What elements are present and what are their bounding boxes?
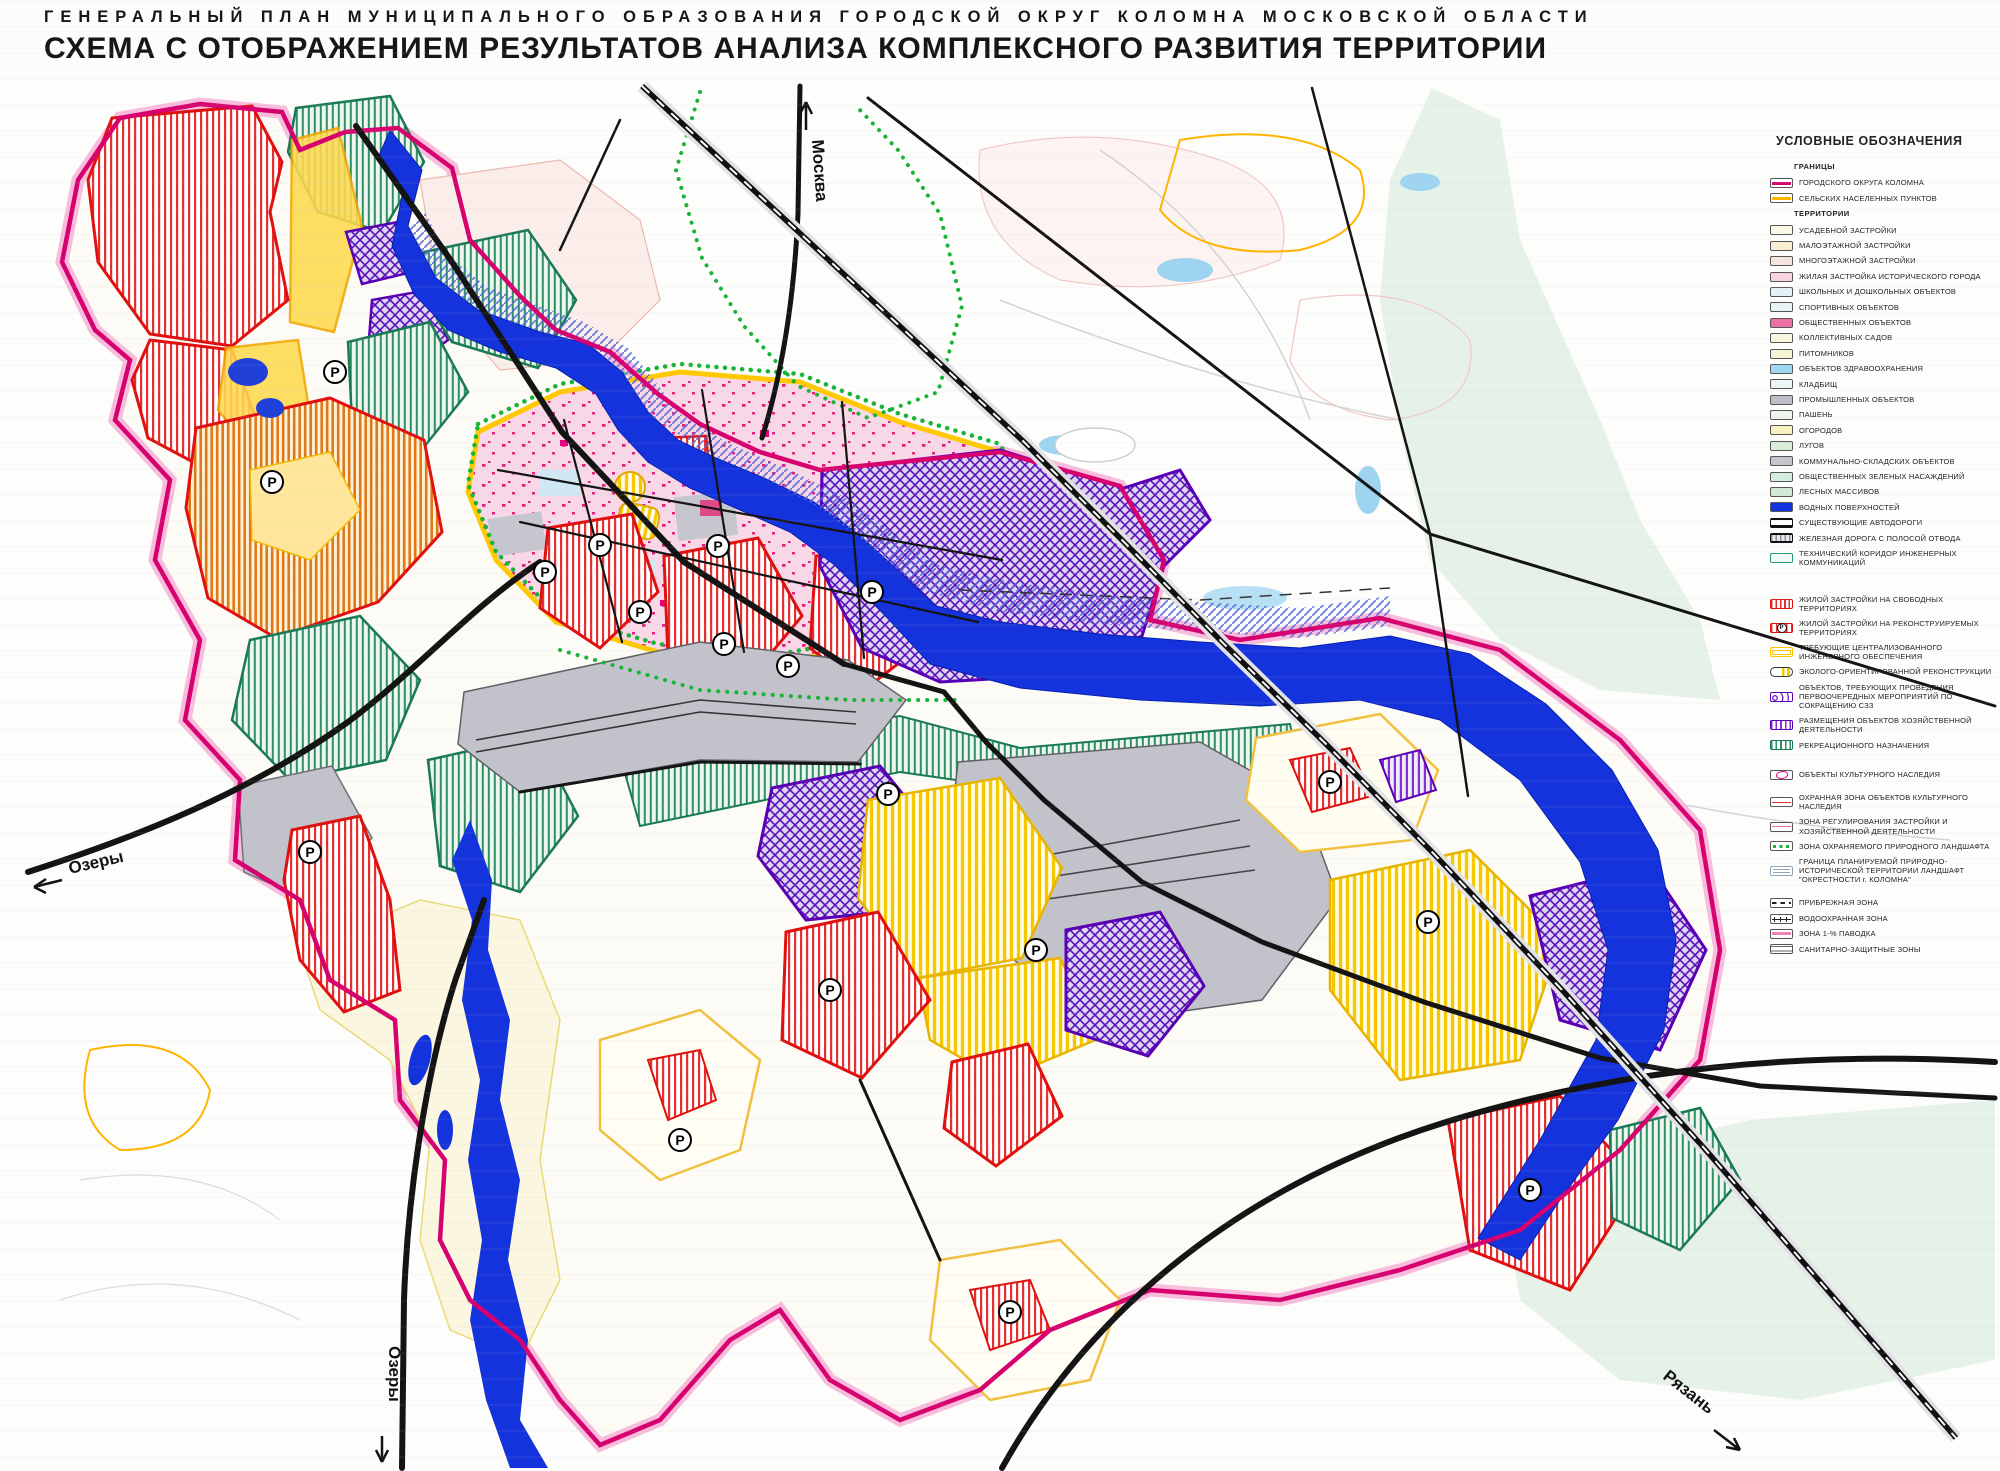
p-marker-label: P xyxy=(1525,1182,1534,1198)
legend-label: ВОДООХРАННАЯ ЗОНА xyxy=(1799,914,1888,923)
p-marker-label: P xyxy=(305,844,314,860)
legend-item: ОБЪЕКТОВ, ТРЕБУЮЩИХ ПРОВЕДЕНИЯ ПЕРВООЧЕР… xyxy=(1770,683,1996,711)
p-marker-label: P xyxy=(719,636,728,652)
collective-gardens-swatch xyxy=(1770,333,1793,343)
legend-label: УСАДЕБНОЙ ЗАСТРОЙКИ xyxy=(1799,226,1897,235)
railway-swatch xyxy=(1770,533,1793,543)
cemeteries-swatch xyxy=(1770,379,1793,389)
lake xyxy=(1355,466,1381,514)
page: { "header": { "supertitle": "ГЕНЕРАЛЬНЫЙ… xyxy=(0,0,2000,1471)
legend-label: ОБЩЕСТВЕННЫХ ОБЪЕКТОВ xyxy=(1799,318,1911,327)
legend-item: ПРИБРЕЖНАЯ ЗОНА xyxy=(1770,898,1996,908)
map-canvas: P P P P P P P P P P P P P P P P P P Моск… xyxy=(0,0,2000,1471)
legend-label: ЗОНА 1-% ПАВОДКА xyxy=(1799,929,1876,938)
water-protection-zone-swatch xyxy=(1770,914,1793,924)
p-marker-label: P xyxy=(267,474,276,490)
legend-label: ВОДНЫХ ПОВЕРХНОСТЕЙ xyxy=(1799,503,1900,512)
recreation-swatch xyxy=(1770,740,1793,750)
flood-zone-swatch xyxy=(1770,929,1793,939)
engineering-swatch xyxy=(1770,647,1793,657)
p-marker-label: P xyxy=(825,982,834,998)
economic-activity-swatch xyxy=(1770,720,1793,730)
legend-item: РЕКРЕАЦИОННОГО НАЗНАЧЕНИЯ xyxy=(1770,740,1996,750)
legend-item: ЖИЛОЙ ЗАСТРОЙКИ НА СВОБОДНЫХ ТЕРРИТОРИЯХ xyxy=(1770,595,1996,614)
legend-item: ЭКОЛОГО-ОРИЕНТИРОВАННОЙ РЕКОНСТРУКЦИИ xyxy=(1770,667,1996,677)
highrise-housing-swatch xyxy=(1770,256,1793,266)
legend-item: ЛЕСНЫХ МАССИВОВ xyxy=(1770,487,1996,497)
legend-item: КЛАДБИЩ xyxy=(1770,379,1996,389)
legend-panel: УСЛОВНЫЕ ОБОЗНАЧЕНИЯ ГРАНИЦЫ ГОРОДСКОГО … xyxy=(1764,134,1996,960)
p-marker-label: P xyxy=(883,786,892,802)
legend-label: СУЩЕСТВУЮЩИЕ АВТОДОРОГИ xyxy=(1799,518,1922,527)
legend-item: ПИТОМНИКОВ xyxy=(1770,349,1996,359)
p-marker: P xyxy=(1417,911,1439,933)
legend-label: ПИТОМНИКОВ xyxy=(1799,349,1854,358)
stadium-oval xyxy=(1055,428,1135,462)
legend-item: КОММУНАЛЬНО-СКЛАДСКИХ ОБЪЕКТОВ xyxy=(1770,456,1996,466)
pond xyxy=(228,358,268,386)
p-marker-label: P xyxy=(330,364,339,380)
p-marker-label: P xyxy=(867,584,876,600)
green-plantings-swatch xyxy=(1770,472,1793,482)
legend-item: ОГОРОДОВ xyxy=(1770,425,1996,435)
tech-corridor-swatch xyxy=(1770,553,1793,563)
legend-title: УСЛОВНЫЕ ОБОЗНАЧЕНИЯ xyxy=(1776,134,1996,148)
legend-item: СПОРТИВНЫХ ОБЪЕКТОВ xyxy=(1770,302,1996,312)
legend-section-borders: ГРАНИЦЫ xyxy=(1794,162,1996,171)
legend-label: ЗОНА РЕГУЛИРОВАНИЯ ЗАСТРОЙКИ И ХОЗЯЙСТВЕ… xyxy=(1799,817,1996,836)
legend-label: ОБЪЕКТОВ ЗДРАВООХРАНЕНИЯ xyxy=(1799,364,1923,373)
legend-item: УСАДЕБНОЙ ЗАСТРОЙКИ xyxy=(1770,225,1996,235)
p-marker: P xyxy=(261,471,283,493)
legend-label: СПОРТИВНЫХ ОБЪЕКТОВ xyxy=(1799,303,1899,312)
p-marker-label: P xyxy=(783,658,792,674)
building-regulation-zone-swatch xyxy=(1770,822,1793,832)
legend-label: КЛАДБИЩ xyxy=(1799,380,1837,389)
legend-label: ТЕХНИЧЕСКИЙ КОРИДОР ИНЖЕНЕРНЫХ КОММУНИКА… xyxy=(1799,549,1996,568)
p-marker-label: P xyxy=(1423,914,1432,930)
heritage-objects-swatch xyxy=(1770,770,1793,780)
housing-free-swatch xyxy=(1770,599,1793,609)
industrial-swatch xyxy=(1770,395,1793,405)
legend-item: СЕЛЬСКИХ НАСЕЛЕННЫХ ПУНКТОВ xyxy=(1770,193,1996,203)
lowrise-housing-swatch xyxy=(1770,241,1793,251)
legend-label: ПАШЕНЬ xyxy=(1799,410,1833,419)
legend-label: ЗОНА ОХРАНЯЕМОГО ПРИРОДНОГО ЛАНДШАФТА xyxy=(1799,842,1990,851)
legend-item: ЛУГОВ xyxy=(1770,441,1996,451)
coastal-zone-swatch xyxy=(1770,898,1793,908)
p-marker-label: P xyxy=(1325,774,1334,790)
legend-section-territories: ТЕРРИТОРИИ xyxy=(1794,209,1996,218)
estate-housing-swatch xyxy=(1770,225,1793,235)
legend-item: ЖИЛАЯ ЗАСТРОЙКА ИСТОРИЧЕСКОГО ГОРОДА xyxy=(1770,272,1996,282)
legend-label: ЖИЛОЙ ЗАСТРОЙКИ НА СВОБОДНЫХ ТЕРРИТОРИЯХ xyxy=(1799,595,1996,614)
p-marker-label: P xyxy=(540,564,549,580)
lake xyxy=(1400,173,1440,191)
public-objects-swatch xyxy=(1770,318,1793,328)
szz-priority-swatch xyxy=(1770,692,1793,702)
legend-label: ЖИЛОЙ ЗАСТРОЙКИ НА РЕКОНСТРУИРУЕМЫХ ТЕРР… xyxy=(1799,619,1996,638)
eco-reconstruction-swatch xyxy=(1770,667,1793,677)
legend-item: ВОДООХРАННАЯ ЗОНА xyxy=(1770,914,1996,924)
legend-label: ОБЪЕКТОВ, ТРЕБУЮЩИХ ПРОВЕДЕНИЯ ПЕРВООЧЕР… xyxy=(1799,683,1996,711)
p-marker: P xyxy=(713,633,735,655)
legend-label: ЖЕЛЕЗНАЯ ДОРОГА С ПОЛОСОЙ ОТВОДА xyxy=(1799,534,1961,543)
city-boundary-swatch xyxy=(1770,178,1793,188)
lake xyxy=(1157,258,1213,282)
p-marker: P xyxy=(299,841,321,863)
p-marker-label: P xyxy=(595,537,604,553)
kitchen-gardens-swatch xyxy=(1770,425,1793,435)
legend-label: ЛУГОВ xyxy=(1799,441,1824,450)
p-marker: P xyxy=(707,535,729,557)
p-marker-label: P xyxy=(713,538,722,554)
school-objects-swatch xyxy=(1770,287,1793,297)
legend-label: ПРИБРЕЖНАЯ ЗОНА xyxy=(1799,898,1878,907)
p-marker: P xyxy=(1025,939,1047,961)
p-marker-label: P xyxy=(675,1132,684,1148)
legend-label: ЭКОЛОГО-ОРИЕНТИРОВАННОЙ РЕКОНСТРУКЦИИ xyxy=(1799,667,1991,676)
p-marker: P xyxy=(669,1129,691,1151)
legend-item: ВОДНЫХ ПОВЕРХНОСТЕЙ xyxy=(1770,502,1996,512)
page-title: СХЕМА С ОТОБРАЖЕНИЕМ РЕЗУЛЬТАТОВ АНАЛИЗА… xyxy=(44,32,1594,66)
legend-item: МАЛОЭТАЖНОЙ ЗАСТРОЙКИ xyxy=(1770,241,1996,251)
legend-item: ГОРОДСКОГО ОКРУГА КОЛОМНА xyxy=(1770,178,1996,188)
p-marker: P xyxy=(589,534,611,556)
legend-label: ПРОМЫШЛЕННЫХ ОБЪЕКТОВ xyxy=(1799,395,1914,404)
legend-item: САНИТАРНО-ЗАЩИТНЫЕ ЗОНЫ xyxy=(1770,944,1996,954)
warehouse-swatch xyxy=(1770,456,1793,466)
p-marker: P xyxy=(534,561,556,583)
nurseries-swatch xyxy=(1770,349,1793,359)
legend-item: ГРАНИЦА ПЛАНИРУЕМОЙ ПРИРОДНО-ИСТОРИЧЕСКО… xyxy=(1770,857,1996,885)
legend-item: ЗОНА ОХРАНЯЕМОГО ПРИРОДНОГО ЛАНДШАФТА xyxy=(1770,841,1996,851)
ozery-south-label: Озеры xyxy=(385,1346,404,1402)
legend-item: ОБЪЕКТЫ КУЛЬТУРНОГО НАСЛЕДИЯ xyxy=(1770,770,1996,780)
legend-item: ШКОЛЬНЫХ И ДОШКОЛЬНЫХ ОБЪЕКТОВ xyxy=(1770,287,1996,297)
legend-label: ТРЕБУЮЩИЕ ЦЕНТРАЛИЗОВАННОГО ИНЖЕНЕРНОГО … xyxy=(1799,643,1996,662)
historic-housing-swatch xyxy=(1770,272,1793,282)
p-marker: P xyxy=(999,1301,1021,1323)
p-marker: P xyxy=(777,655,799,677)
legend-label: КОЛЛЕКТИВНЫХ САДОВ xyxy=(1799,333,1892,342)
legend-item: ТЕХНИЧЕСКИЙ КОРИДОР ИНЖЕНЕРНЫХ КОММУНИКА… xyxy=(1770,549,1996,568)
legend-label: ОХРАННАЯ ЗОНА ОБЪЕКТОВ КУЛЬТУРНОГО НАСЛЕ… xyxy=(1799,793,1996,812)
legend-item: КОЛЛЕКТИВНЫХ САДОВ xyxy=(1770,333,1996,343)
legend-gap xyxy=(1764,785,1996,793)
sanitary-zones-swatch xyxy=(1770,944,1793,954)
map-supertitle: ГЕНЕРАЛЬНЫЙ ПЛАН МУНИЦИПАЛЬНОГО ОБРАЗОВА… xyxy=(44,8,1594,27)
protected-landscape-swatch xyxy=(1770,841,1793,851)
housing-reconstruction-swatch: P xyxy=(1770,623,1793,633)
water-swatch xyxy=(1770,502,1793,512)
legend-item: РАЗМЕЩЕНИЯ ОБЪЕКТОВ ХОЗЯЙСТВЕННОЙ ДЕЯТЕЛ… xyxy=(1770,716,1996,735)
p-marker-label: P xyxy=(1005,1304,1014,1320)
settlement-boundary-swatch xyxy=(1770,193,1793,203)
p-marker-label: P xyxy=(1031,942,1040,958)
legend-item: ПРОМЫШЛЕННЫХ ОБЪЕКТОВ xyxy=(1770,395,1996,405)
legend-label: КОММУНАЛЬНО-СКЛАДСКИХ ОБЪЕКТОВ xyxy=(1799,457,1955,466)
pond xyxy=(256,398,284,418)
legend-label: ЖИЛАЯ ЗАСТРОЙКА ИСТОРИЧЕСКОГО ГОРОДА xyxy=(1799,272,1981,281)
roads-swatch xyxy=(1770,518,1793,528)
legend-item: ТРЕБУЮЩИЕ ЦЕНТРАЛИЗОВАННОГО ИНЖЕНЕРНОГО … xyxy=(1770,643,1996,662)
sport-objects-swatch xyxy=(1770,302,1793,312)
p-marker: P xyxy=(1519,1179,1541,1201)
legend-label: ЛЕСНЫХ МАССИВОВ xyxy=(1799,487,1879,496)
legend-label: ГОРОДСКОГО ОКРУГА КОЛОМНА xyxy=(1799,178,1924,187)
map-header: ГЕНЕРАЛЬНЫЙ ПЛАН МУНИЦИПАЛЬНОГО ОБРАЗОВА… xyxy=(44,8,1594,66)
legend-item: СУЩЕСТВУЮЩИЕ АВТОДОРОГИ xyxy=(1770,518,1996,528)
p-marker: P xyxy=(819,979,841,1001)
legend-label: ОБЪЕКТЫ КУЛЬТУРНОГО НАСЛЕДИЯ xyxy=(1799,770,1940,779)
arable-swatch xyxy=(1770,410,1793,420)
heritage-protection-zone-swatch xyxy=(1770,797,1793,807)
oxbow-lake xyxy=(437,1110,453,1150)
legend-label: ОБЩЕСТВЕННЫХ ЗЕЛЕНЫХ НАСАЖДЕНИЙ xyxy=(1799,472,1965,481)
p-marker: P xyxy=(861,581,883,603)
legend-label: САНИТАРНО-ЗАЩИТНЫЕ ЗОНЫ xyxy=(1799,945,1921,954)
legend-item: ЖЕЛЕЗНАЯ ДОРОГА С ПОЛОСОЙ ОТВОДА xyxy=(1770,533,1996,543)
legend-label: МНОГОЭТАЖНОЙ ЗАСТРОЙКИ xyxy=(1799,256,1916,265)
legend-gap xyxy=(1764,573,1996,595)
legend-item: ПАШЕНЬ xyxy=(1770,410,1996,420)
legend-label: РЕКРЕАЦИОННОГО НАЗНАЧЕНИЯ xyxy=(1799,741,1929,750)
legend-label: РАЗМЕЩЕНИЯ ОБЪЕКТОВ ХОЗЯЙСТВЕННОЙ ДЕЯТЕЛ… xyxy=(1799,716,1996,735)
legend-item: ЗОНА 1-% ПАВОДКА xyxy=(1770,929,1996,939)
p-symbol-icon: P xyxy=(1777,623,1787,633)
legend-gap xyxy=(1764,756,1996,770)
p-marker: P xyxy=(877,783,899,805)
p-marker: P xyxy=(1319,771,1341,793)
legend-item: ОБЪЕКТОВ ЗДРАВООХРАНЕНИЯ xyxy=(1770,364,1996,374)
legend-item: ЗОНА РЕГУЛИРОВАНИЯ ЗАСТРОЙКИ И ХОЗЯЙСТВЕ… xyxy=(1770,817,1996,836)
legend-label: СЕЛЬСКИХ НАСЕЛЕННЫХ ПУНКТОВ xyxy=(1799,194,1937,203)
legend-label: МАЛОЭТАЖНОЙ ЗАСТРОЙКИ xyxy=(1799,241,1911,250)
legend-item: ОБЩЕСТВЕННЫХ ЗЕЛЕНЫХ НАСАЖДЕНИЙ xyxy=(1770,472,1996,482)
p-marker: P xyxy=(629,601,651,623)
planned-landscape-boundary-swatch xyxy=(1770,866,1793,876)
legend-label: ОГОРОДОВ xyxy=(1799,426,1842,435)
p-marker-label: P xyxy=(635,604,644,620)
p-marker: P xyxy=(324,361,346,383)
legend-item: ОБЩЕСТВЕННЫХ ОБЪЕКТОВ xyxy=(1770,318,1996,328)
meadows-swatch xyxy=(1770,441,1793,451)
legend-label: ГРАНИЦА ПЛАНИРУЕМОЙ ПРИРОДНО-ИСТОРИЧЕСКО… xyxy=(1799,857,1996,885)
forest-swatch xyxy=(1770,487,1793,497)
legend-gap xyxy=(1764,890,1996,898)
legend-item: ОХРАННАЯ ЗОНА ОБЪЕКТОВ КУЛЬТУРНОГО НАСЛЕ… xyxy=(1770,793,1996,812)
healthcare-swatch xyxy=(1770,364,1793,374)
legend-item: PЖИЛОЙ ЗАСТРОЙКИ НА РЕКОНСТРУИРУЕМЫХ ТЕР… xyxy=(1770,619,1996,638)
legend-label: ШКОЛЬНЫХ И ДОШКОЛЬНЫХ ОБЪЕКТОВ xyxy=(1799,287,1956,296)
legend-item: МНОГОЭТАЖНОЙ ЗАСТРОЙКИ xyxy=(1770,256,1996,266)
